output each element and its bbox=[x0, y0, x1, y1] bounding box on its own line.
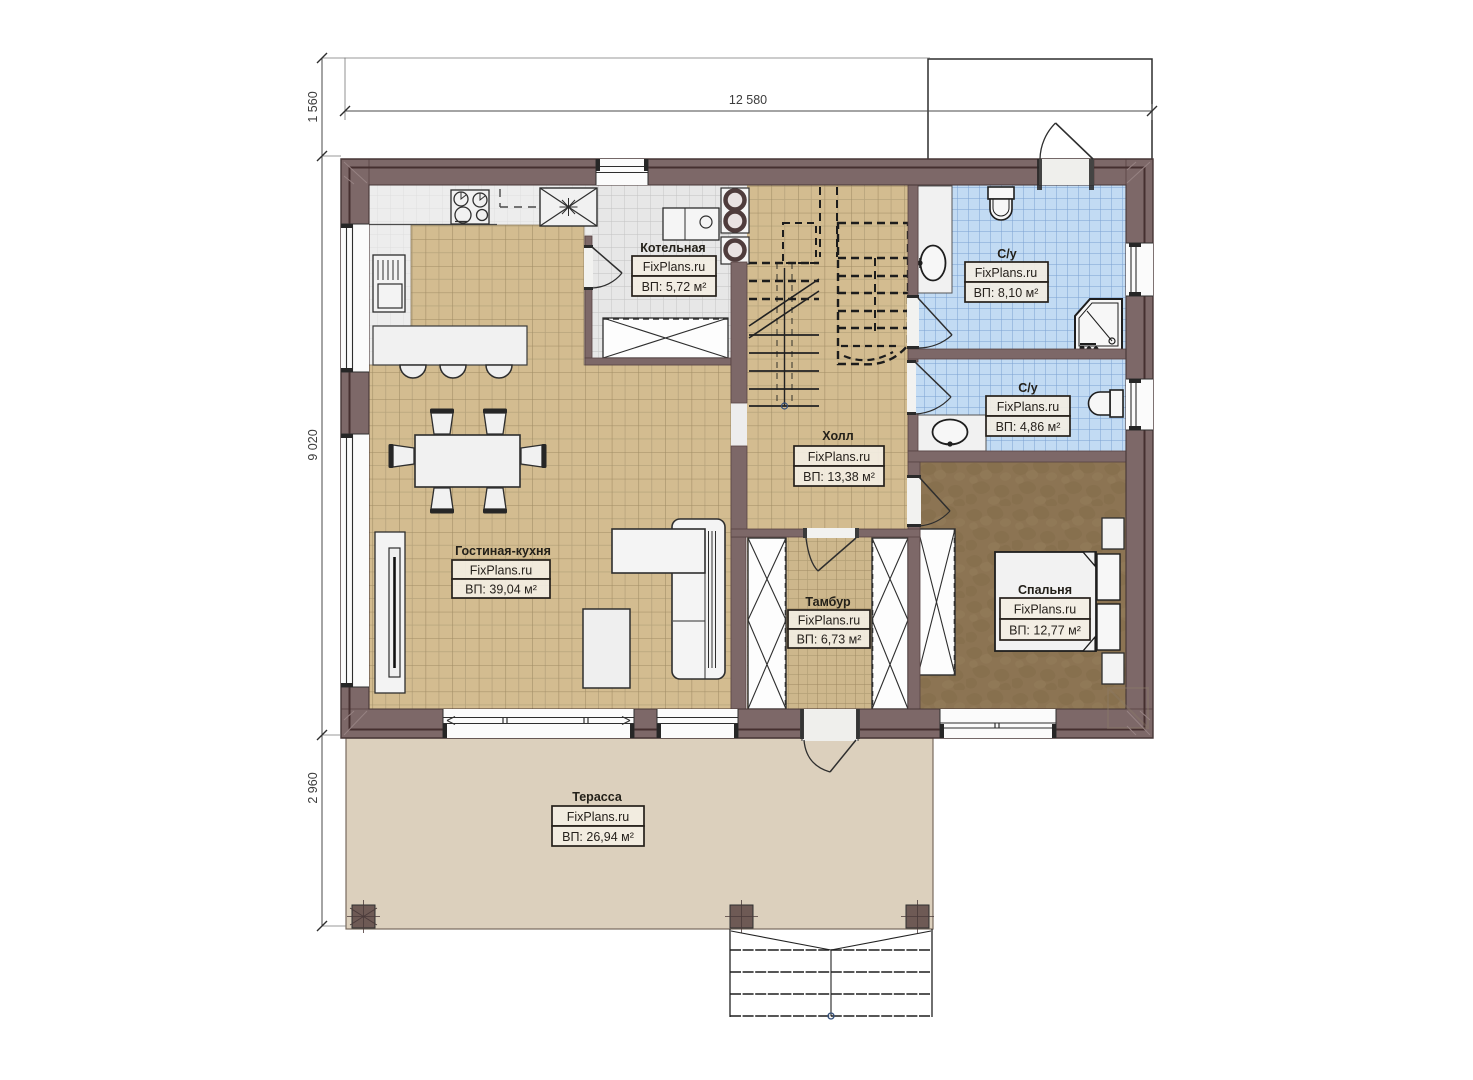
svg-text:ВП: 13,38 м²: ВП: 13,38 м² bbox=[803, 470, 875, 484]
svg-text:Спальня: Спальня bbox=[1018, 583, 1072, 597]
svg-text:ВП: 8,10 м²: ВП: 8,10 м² bbox=[974, 286, 1039, 300]
svg-text:ВП: 26,94 м²: ВП: 26,94 м² bbox=[562, 830, 634, 844]
svg-text:FixPlans.ru: FixPlans.ru bbox=[567, 810, 630, 824]
svg-text:ВП: 39,04 м²: ВП: 39,04 м² bbox=[465, 583, 537, 597]
svg-text:ВП: 6,73 м²: ВП: 6,73 м² bbox=[797, 633, 862, 647]
svg-text:Котельная: Котельная bbox=[640, 241, 705, 255]
svg-text:Гостиная-кухня: Гостиная-кухня bbox=[455, 544, 551, 558]
svg-text:С/у: С/у bbox=[997, 247, 1017, 261]
svg-text:FixPlans.ru: FixPlans.ru bbox=[997, 400, 1060, 414]
svg-text:ВП: 12,77 м²: ВП: 12,77 м² bbox=[1009, 624, 1081, 638]
svg-text:Терасса: Терасса bbox=[572, 790, 623, 804]
svg-text:FixPlans.ru: FixPlans.ru bbox=[975, 266, 1038, 280]
svg-text:Холл: Холл bbox=[822, 429, 853, 443]
svg-text:FixPlans.ru: FixPlans.ru bbox=[1014, 603, 1077, 617]
svg-text:FixPlans.ru: FixPlans.ru bbox=[470, 564, 533, 578]
svg-text:9 020: 9 020 bbox=[306, 429, 320, 460]
svg-text:FixPlans.ru: FixPlans.ru bbox=[798, 614, 861, 628]
svg-text:1 560: 1 560 bbox=[306, 91, 320, 122]
svg-text:FixPlans.ru: FixPlans.ru bbox=[643, 260, 706, 274]
svg-text:FixPlans.ru: FixPlans.ru bbox=[808, 450, 871, 464]
svg-text:ВП: 4,86 м²: ВП: 4,86 м² bbox=[996, 420, 1061, 434]
svg-text:Тамбур: Тамбур bbox=[805, 595, 851, 609]
svg-text:ВП: 5,72 м²: ВП: 5,72 м² bbox=[642, 280, 707, 294]
svg-text:С/у: С/у bbox=[1018, 381, 1038, 395]
svg-text:12 580: 12 580 bbox=[729, 93, 767, 107]
svg-text:2 960: 2 960 bbox=[306, 772, 320, 803]
